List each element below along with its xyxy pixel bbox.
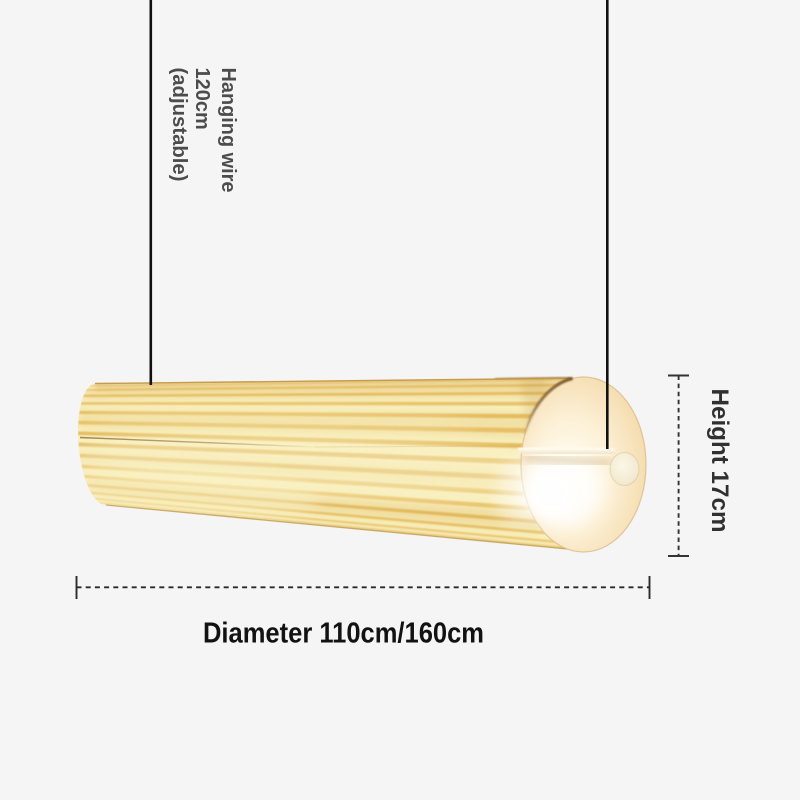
svg-text:120cm: 120cm	[191, 68, 213, 130]
svg-text:Height 17cm: Height 17cm	[706, 389, 733, 533]
svg-text:(adjustable): (adjustable)	[168, 68, 190, 182]
svg-text:Diameter 110cm/160cm: Diameter 110cm/160cm	[203, 618, 484, 650]
svg-text:Hanging wire: Hanging wire	[217, 68, 239, 193]
